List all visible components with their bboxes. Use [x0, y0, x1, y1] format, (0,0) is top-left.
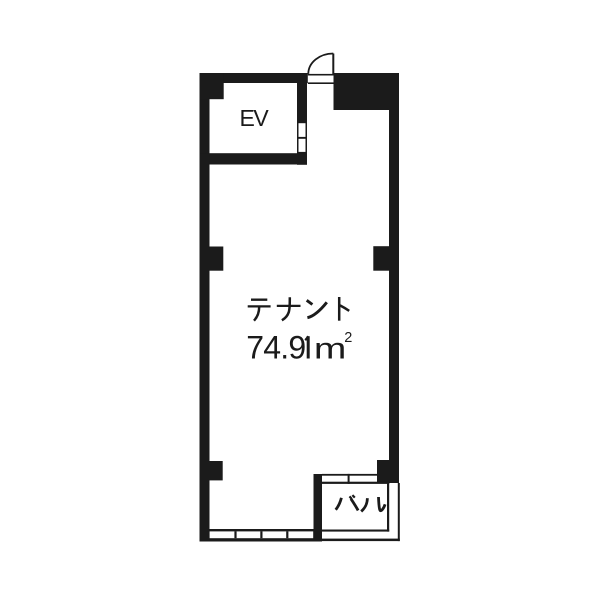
- svg-text:m: m: [314, 333, 346, 366]
- svg-text:EV: EV: [240, 105, 270, 131]
- svg-text:74.9: 74.9: [246, 330, 305, 366]
- svg-text:2: 2: [344, 330, 352, 346]
